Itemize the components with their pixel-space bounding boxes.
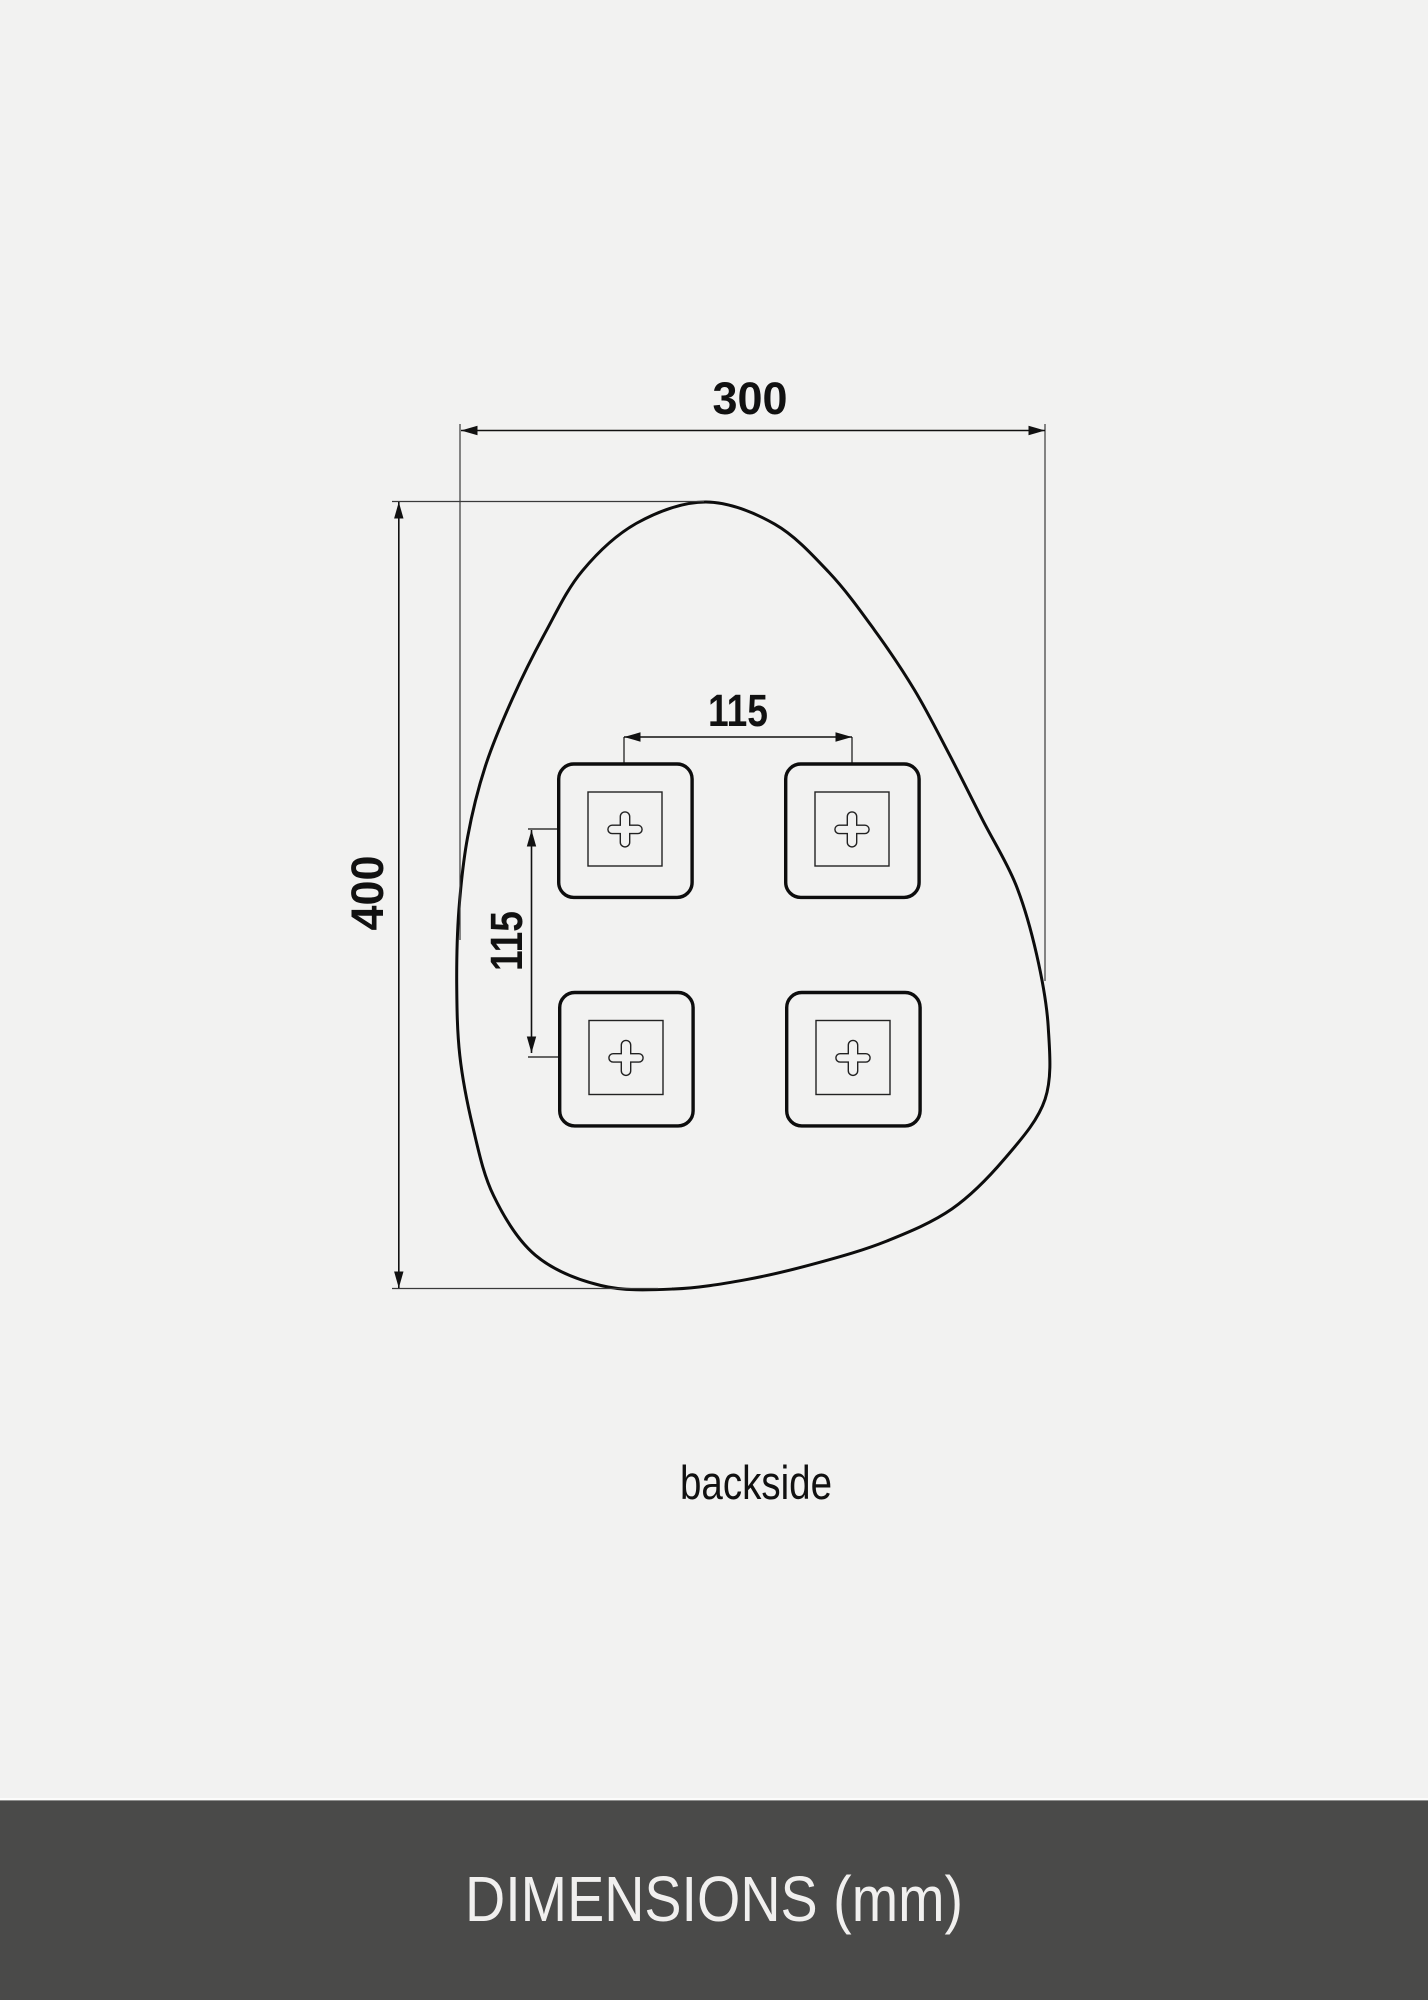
svg-text:300: 300 [713, 373, 788, 424]
svg-text:DIMENSIONS (mm): DIMENSIONS (mm) [465, 1863, 963, 1935]
svg-text:115: 115 [481, 911, 532, 971]
svg-text:400: 400 [342, 856, 393, 931]
svg-text:115: 115 [708, 685, 768, 736]
svg-text:backside: backside [680, 1456, 832, 1509]
